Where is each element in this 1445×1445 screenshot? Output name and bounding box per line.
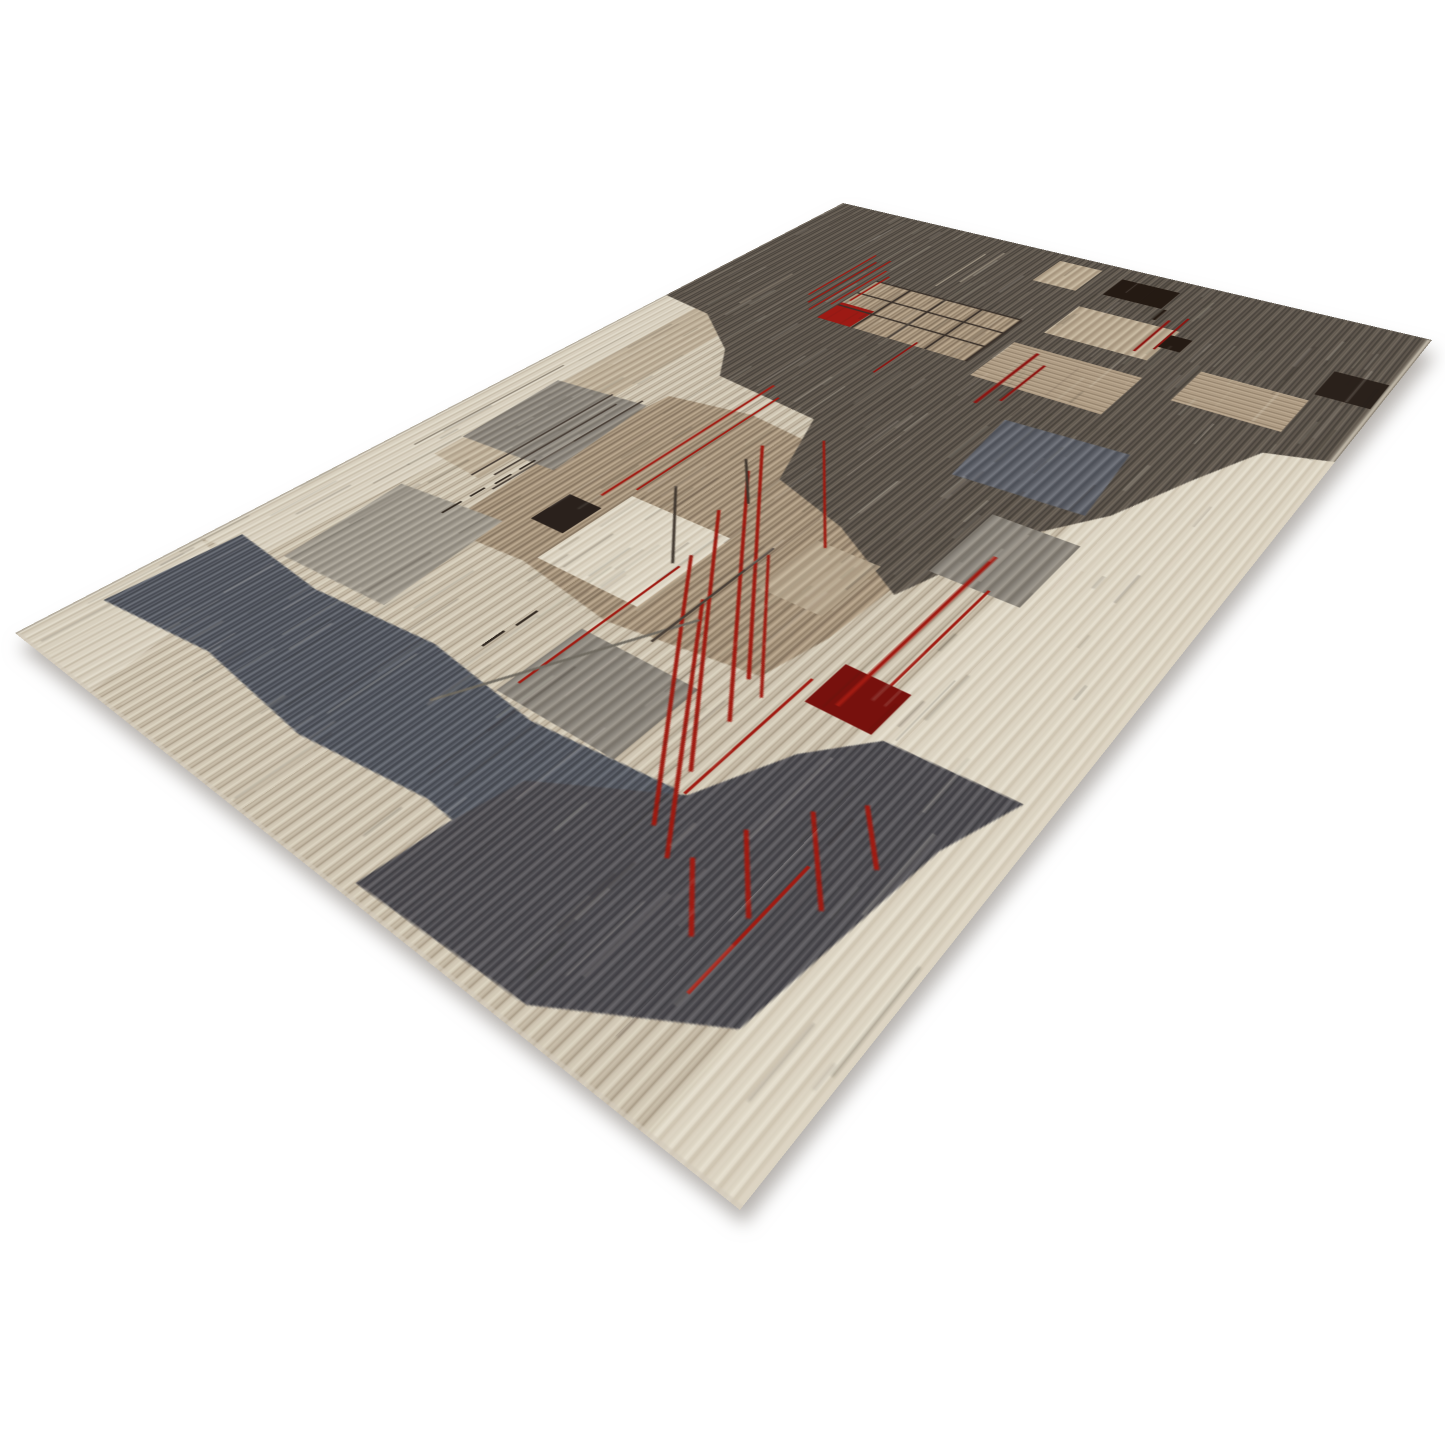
rug-photo bbox=[15, 203, 1432, 1210]
rug-shadow-wrap bbox=[0, 0, 1445, 1445]
photo-stage bbox=[0, 0, 1445, 1445]
rug-pattern-svg bbox=[15, 203, 1432, 1210]
